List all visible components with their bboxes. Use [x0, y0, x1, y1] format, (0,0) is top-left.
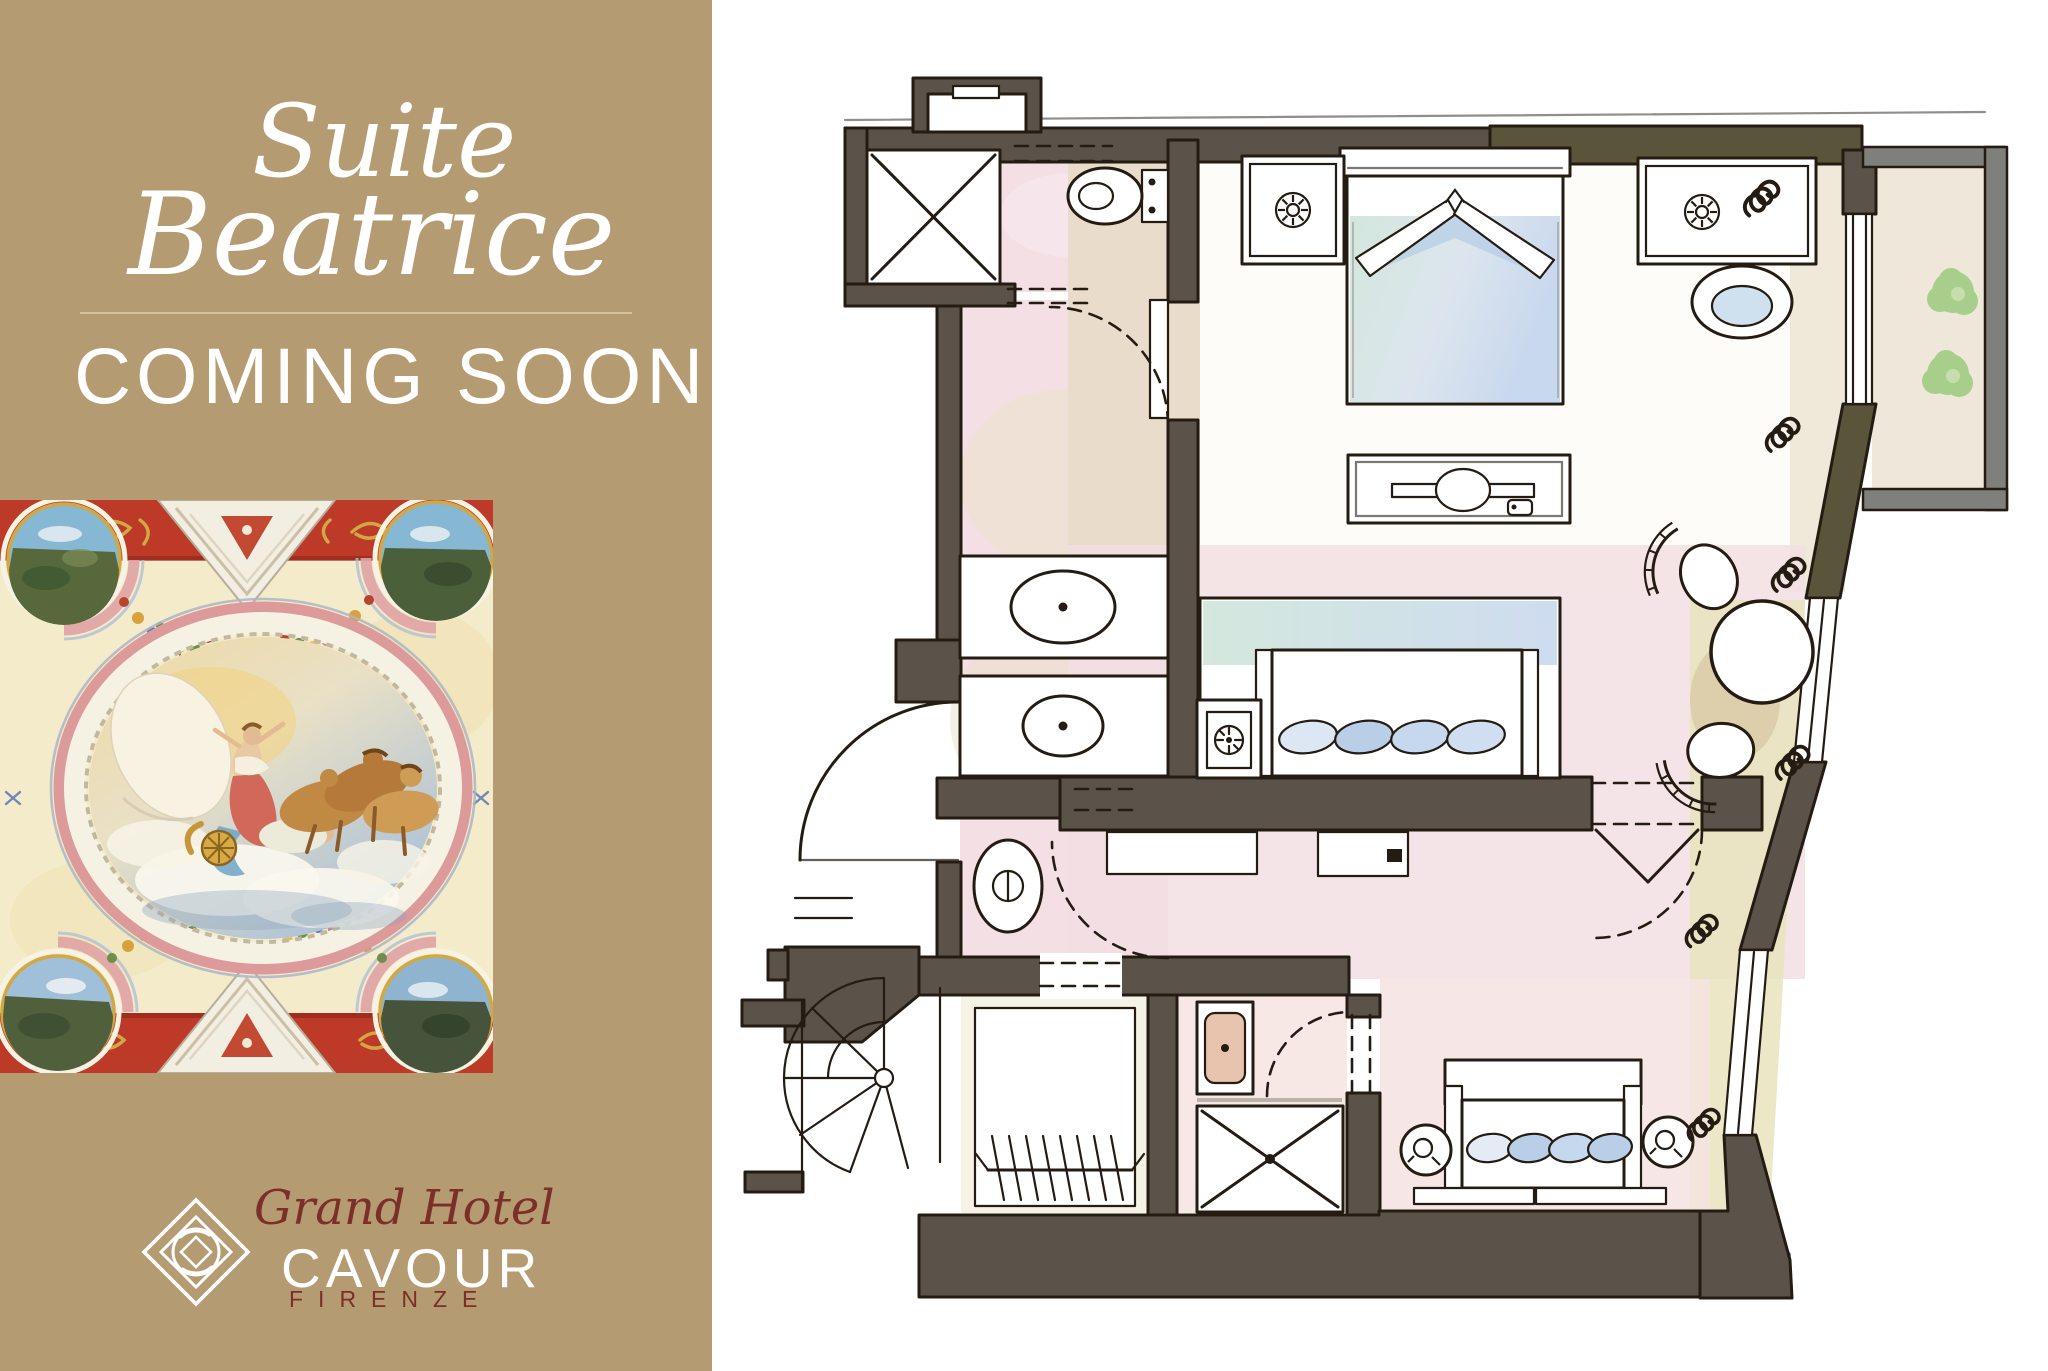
dining-table [1711, 601, 1813, 703]
suite-floor-plan-drawing [712, 0, 2048, 1371]
ceiling-fresco-image [0, 500, 493, 1073]
entrance-door-arc [795, 702, 958, 918]
side-table [1643, 1117, 1693, 1167]
toilet [1068, 168, 1168, 224]
shower-stall [867, 150, 1000, 284]
wardrobe-rail [975, 1008, 1144, 1206]
consoles [1107, 832, 1408, 876]
grand-hotel-script: Grand Hotel [254, 1184, 555, 1232]
divider-line [80, 312, 632, 314]
coming-soon-label: COMING SOON [74, 330, 708, 422]
luggage-bench [1348, 455, 1570, 523]
brochure-panel: Suite Beatrice COMING SOON [0, 0, 712, 1371]
nightstand-left [1242, 156, 1344, 264]
side-table [1401, 1125, 1451, 1175]
master-bed [1340, 148, 1570, 404]
page: Suite Beatrice COMING SOON [0, 0, 2048, 1371]
suite-title-line2: Beatrice [128, 178, 615, 292]
firenze-label: FIRENZE [289, 1286, 492, 1313]
fresco-svg [0, 500, 493, 1073]
safe [1197, 700, 1261, 778]
diamond-knot-icon [140, 1196, 252, 1308]
